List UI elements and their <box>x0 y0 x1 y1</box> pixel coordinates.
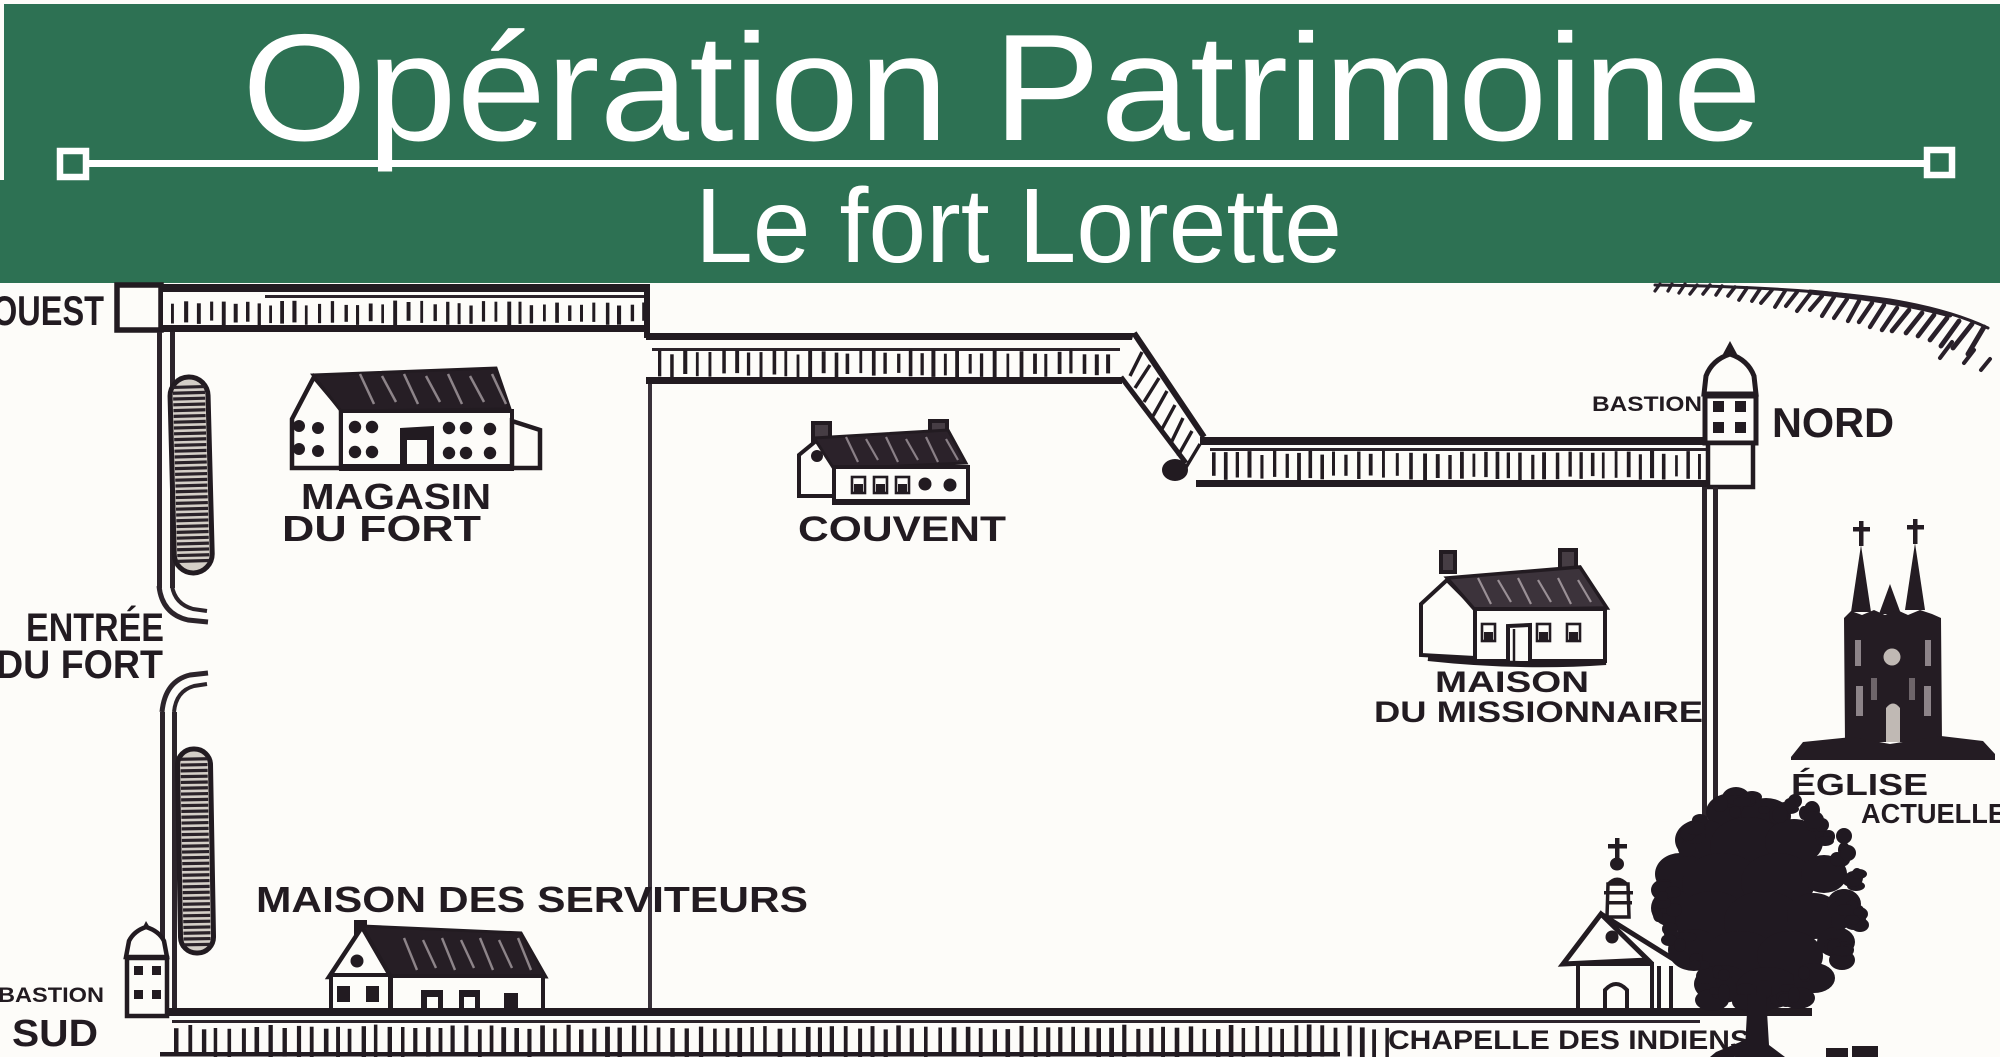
svg-text:CHAPELLE DES INDIENS: CHAPELLE DES INDIENS <box>1388 1025 1750 1055</box>
svg-text:DU FORT: DU FORT <box>0 643 163 687</box>
svg-text:COUVENT: COUVENT <box>798 510 1006 549</box>
svg-text:SUD: SUD <box>12 1013 98 1055</box>
svg-text:DU MISSIONNAIRE: DU MISSIONNAIRE <box>1374 696 1703 729</box>
svg-text:ÉGLISE: ÉGLISE <box>1791 767 1928 802</box>
svg-text:NORD: NORD <box>1772 399 1894 446</box>
svg-text:MAISON: MAISON <box>1435 666 1589 699</box>
svg-text:DU FORT: DU FORT <box>282 508 481 549</box>
svg-text:Opération Patrimoine: Opération Patrimoine <box>242 3 1762 173</box>
svg-text:BASTION: BASTION <box>1592 393 1702 416</box>
svg-text:ACTUELLE: ACTUELLE <box>1861 798 2000 829</box>
svg-text:OUEST: OUEST <box>0 287 104 334</box>
svg-text:MAISON DES SERVITEURS: MAISON DES SERVITEURS <box>256 879 808 920</box>
svg-text:BASTION: BASTION <box>0 984 104 1007</box>
svg-text:Le fort Lorette: Le fort Lorette <box>695 167 1342 285</box>
